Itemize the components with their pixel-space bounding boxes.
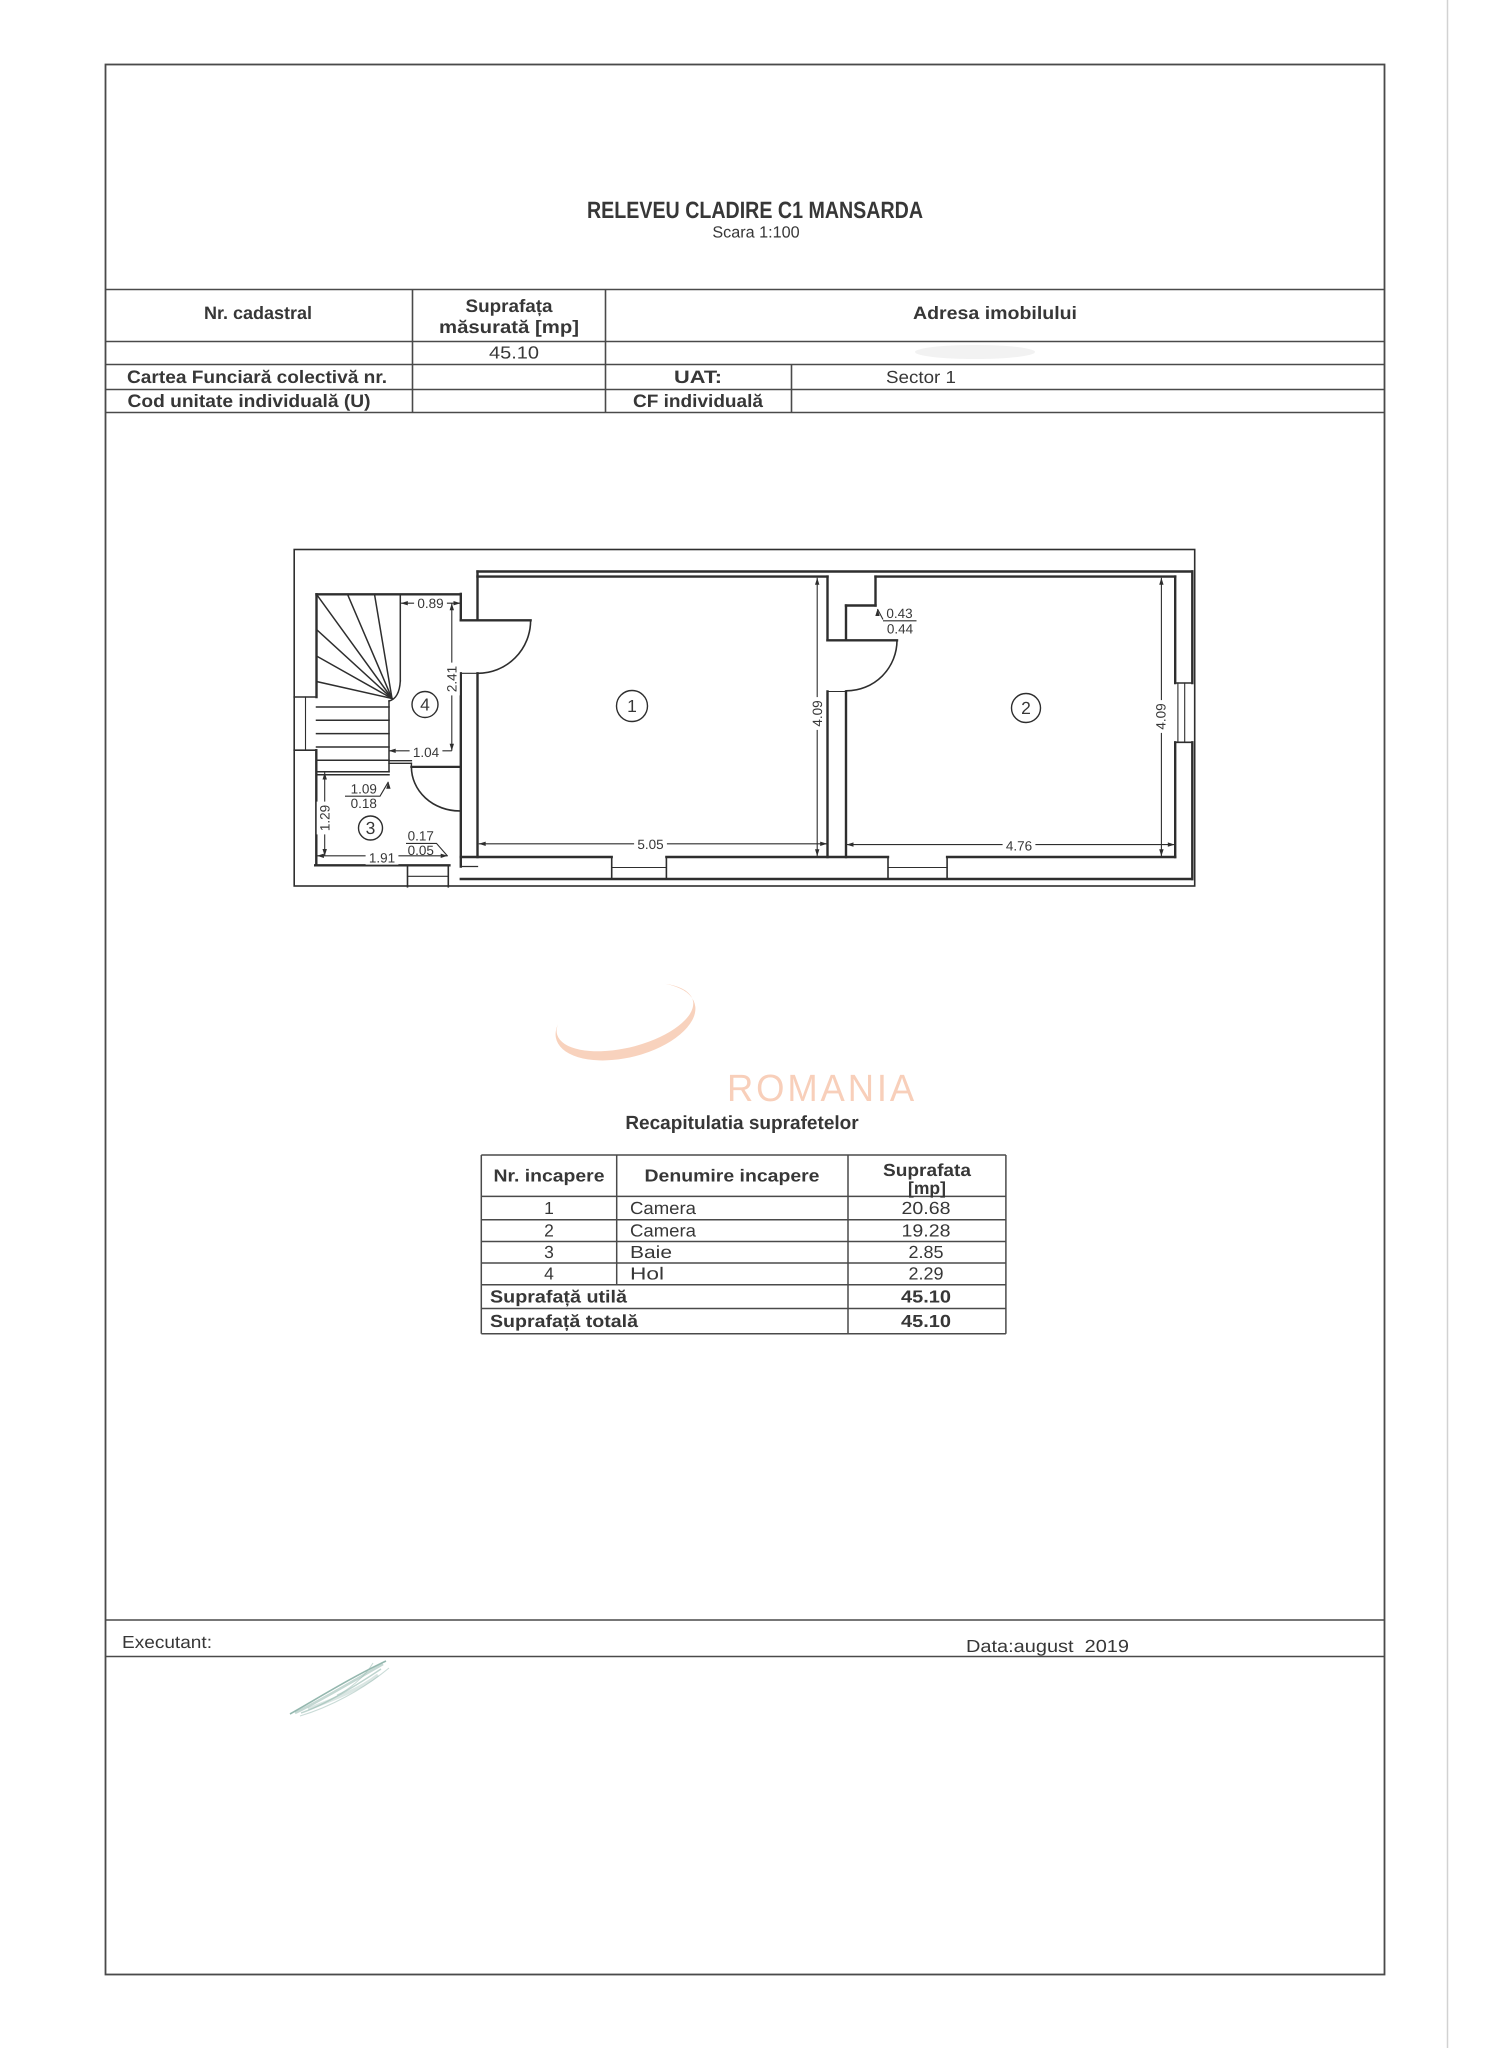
svg-text:Sector 1: Sector 1 [886, 367, 956, 387]
svg-text:0.89: 0.89 [417, 596, 443, 611]
svg-text:Suprafață totală: Suprafață totală [490, 1311, 638, 1332]
svg-text:ROMANIA: ROMANIA [727, 1068, 917, 1110]
svg-text:Suprafață utilă: Suprafață utilă [490, 1287, 627, 1308]
svg-text:0.43: 0.43 [886, 606, 912, 621]
svg-text:2: 2 [544, 1221, 554, 1241]
svg-text:0.17: 0.17 [408, 829, 434, 844]
svg-text:Suprafața: Suprafața [466, 296, 554, 317]
svg-text:2: 2 [1021, 698, 1031, 718]
svg-text:Data:august 2019: Data:august 2019 [966, 1636, 1129, 1656]
svg-text:CF individuală: CF individuală [633, 391, 764, 411]
svg-text:4.09: 4.09 [810, 700, 825, 726]
svg-text:4.09: 4.09 [1154, 703, 1169, 729]
svg-text:2.29: 2.29 [909, 1264, 944, 1284]
svg-text:Cod unitate individuală (U): Cod unitate individuală (U) [128, 391, 371, 411]
svg-text:1.29: 1.29 [318, 805, 333, 831]
svg-text:20.68: 20.68 [902, 1198, 951, 1218]
svg-text:4: 4 [420, 695, 430, 715]
svg-text:Hol: Hol [630, 1264, 664, 1284]
svg-text:3: 3 [366, 818, 376, 838]
svg-text:Cartea Funciară colectivă nr.: Cartea Funciară colectivă nr. [127, 367, 387, 387]
svg-text:Adresa imobilului: Adresa imobilului [913, 303, 1077, 323]
svg-text:45.10: 45.10 [489, 343, 539, 363]
svg-text:1: 1 [627, 696, 637, 716]
svg-text:Recapitulatia suprafetelor: Recapitulatia suprafetelor [625, 1113, 859, 1134]
svg-text:19.28: 19.28 [902, 1221, 951, 1241]
svg-text:1.09: 1.09 [351, 782, 377, 797]
svg-text:Nr. cadastral: Nr. cadastral [204, 303, 312, 323]
svg-text:1: 1 [544, 1198, 554, 1218]
svg-text:5.05: 5.05 [637, 837, 663, 852]
svg-text:2.85: 2.85 [909, 1242, 944, 1262]
svg-text:UAT:: UAT: [674, 367, 722, 387]
svg-text:măsurată [mp]: măsurată [mp] [439, 317, 579, 337]
svg-text:0.18: 0.18 [351, 796, 377, 811]
svg-text:Suprafata: Suprafata [883, 1160, 971, 1180]
svg-text:1.04: 1.04 [413, 745, 440, 760]
svg-text:Baie: Baie [630, 1242, 672, 1262]
svg-text:45.10: 45.10 [901, 1287, 951, 1307]
svg-text:RELEVEU CLADIRE C1 MANSARDA: RELEVEU CLADIRE C1 MANSARDA [587, 198, 923, 224]
svg-text:4: 4 [544, 1264, 554, 1284]
svg-text:Nr. incapere: Nr. incapere [494, 1166, 605, 1186]
svg-text:2.41: 2.41 [445, 666, 460, 692]
svg-text:Camera: Camera [630, 1221, 696, 1241]
svg-text:1.91: 1.91 [369, 850, 395, 865]
svg-text:3: 3 [544, 1242, 554, 1262]
svg-text:Executant:: Executant: [122, 1632, 212, 1652]
svg-text:45.10: 45.10 [901, 1311, 951, 1331]
svg-text:0.44: 0.44 [887, 621, 914, 636]
svg-text:4.76: 4.76 [1006, 839, 1032, 854]
svg-text:Scara 1:100: Scara 1:100 [712, 224, 799, 242]
svg-text:[mp]: [mp] [908, 1178, 946, 1198]
svg-text:Denumire incapere: Denumire incapere [645, 1166, 820, 1186]
svg-text:Camera: Camera [630, 1198, 696, 1218]
